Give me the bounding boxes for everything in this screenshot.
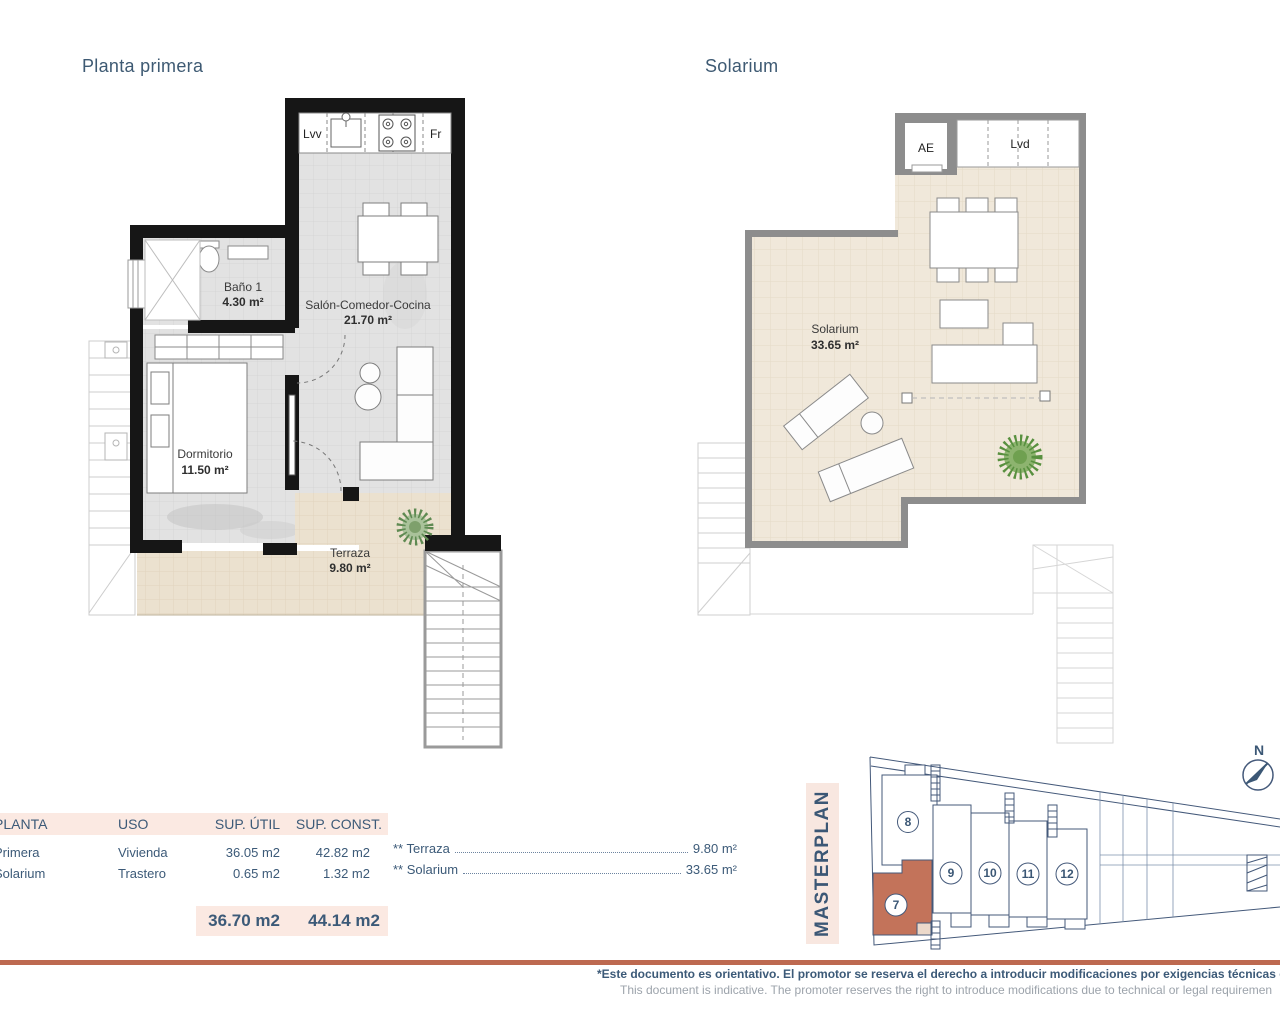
annotation-terraza: ** Terraza 9.80 m²	[393, 841, 737, 856]
living-area: 21.70 m²	[344, 313, 392, 327]
footer-divider	[0, 960, 1280, 965]
dotted-leader	[463, 873, 681, 874]
solarium-dining	[930, 198, 1018, 282]
plan2-drawing: AE Lvd	[690, 105, 1130, 765]
exterior-stair-left-sol	[698, 443, 750, 615]
annotation-terraza-label: ** Terraza	[393, 841, 450, 856]
fridge-label: Fr	[430, 127, 441, 141]
exterior-stair-left	[89, 341, 135, 615]
row1-planta: Primera	[0, 845, 40, 860]
footer-disclaimer-en: This document is indicative. The promote…	[620, 983, 1272, 997]
wardrobe	[155, 335, 283, 359]
window	[128, 260, 145, 308]
masterplan-drawing: 8 7 9 10 11 12 N	[855, 735, 1280, 960]
plan1-title: Planta primera	[82, 56, 203, 77]
bathroom-name: Baño 1	[224, 280, 262, 294]
row2-const: 1.32 m2	[282, 866, 370, 881]
unit-8-number: 8	[905, 815, 912, 829]
compass-icon: N	[1243, 742, 1273, 790]
unit-11-number: 11	[1022, 867, 1035, 881]
kitchen-counter	[299, 113, 451, 153]
dotted-leader	[455, 852, 688, 853]
unit-7-number: 7	[893, 898, 900, 912]
row1-const: 42.82 m2	[282, 845, 370, 860]
footer-disclaimer-es: *Este documento es orientativo. El promo…	[597, 967, 1280, 981]
exterior-stair-right-sol	[750, 545, 1113, 743]
elevator-label: AE	[918, 141, 934, 155]
solarium-name: Solarium	[811, 322, 858, 336]
unit-9-number: 9	[948, 866, 955, 880]
row2-util: 0.65 m2	[180, 866, 280, 881]
annotation-solarium-value: 33.65 m²	[686, 862, 737, 877]
row1-uso: Vivienda	[118, 845, 168, 860]
plan1-drawing: Lvv Fr	[75, 95, 515, 755]
laundry-label: Lvd	[1010, 137, 1029, 151]
col-uso-header: USO	[118, 816, 148, 832]
col-util-header: SUP. ÚTIL	[180, 816, 280, 832]
bedroom-area: 11.50 m²	[181, 463, 228, 477]
unit-12-number: 12	[1060, 867, 1074, 881]
floorplan-document: Planta primera Solarium	[0, 0, 1280, 1024]
unit-10-number: 10	[983, 866, 997, 880]
col-planta-header: PLANTA	[0, 816, 47, 832]
solarium-area: 33.65 m²	[811, 338, 859, 352]
annotation-terraza-value: 9.80 m²	[693, 841, 737, 856]
masterplan-label-badge: MASTERPLAN	[806, 783, 839, 944]
row2-planta: Solarium	[0, 866, 45, 881]
terrace-name: Terraza	[330, 546, 370, 560]
terrace-area: 9.80 m²	[329, 561, 370, 575]
total-util: 36.70 m2	[180, 911, 280, 931]
row1-util: 36.05 m2	[180, 845, 280, 860]
masterplan-label: MASTERPLAN	[812, 790, 834, 937]
bedroom-name: Dormitorio	[177, 447, 233, 461]
stove	[379, 115, 415, 151]
col-const-header: SUP. CONST.	[282, 816, 382, 832]
bathroom-area: 4.30 m²	[222, 295, 263, 309]
compass-n: N	[1254, 742, 1264, 758]
annotation-solarium: ** Solarium 33.65 m²	[393, 862, 737, 877]
plan2-title: Solarium	[705, 56, 778, 77]
interior-stair	[425, 551, 501, 747]
elevator-door	[912, 165, 942, 172]
annotation-solarium-label: ** Solarium	[393, 862, 458, 877]
dishwasher-label: Lvv	[303, 127, 322, 141]
living-name: Salón-Comedor-Cocina	[305, 298, 431, 312]
row2-uso: Trastero	[118, 866, 166, 881]
sliding-door	[289, 395, 295, 475]
total-const: 44.14 m2	[282, 911, 380, 931]
